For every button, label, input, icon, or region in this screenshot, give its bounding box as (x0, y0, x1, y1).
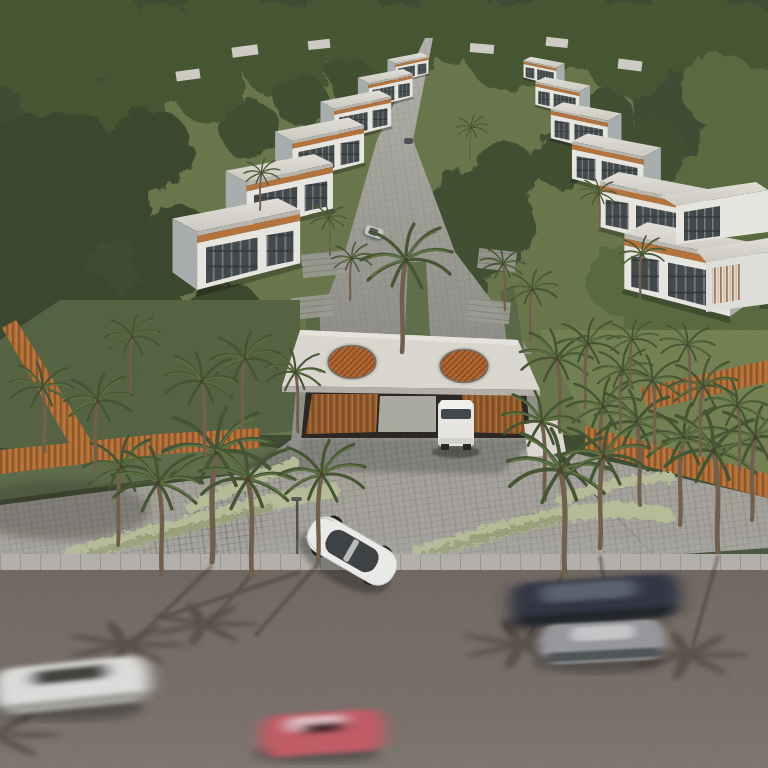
global-grain (0, 0, 768, 768)
rendering-canvas (0, 0, 768, 768)
render-stage (0, 0, 768, 768)
